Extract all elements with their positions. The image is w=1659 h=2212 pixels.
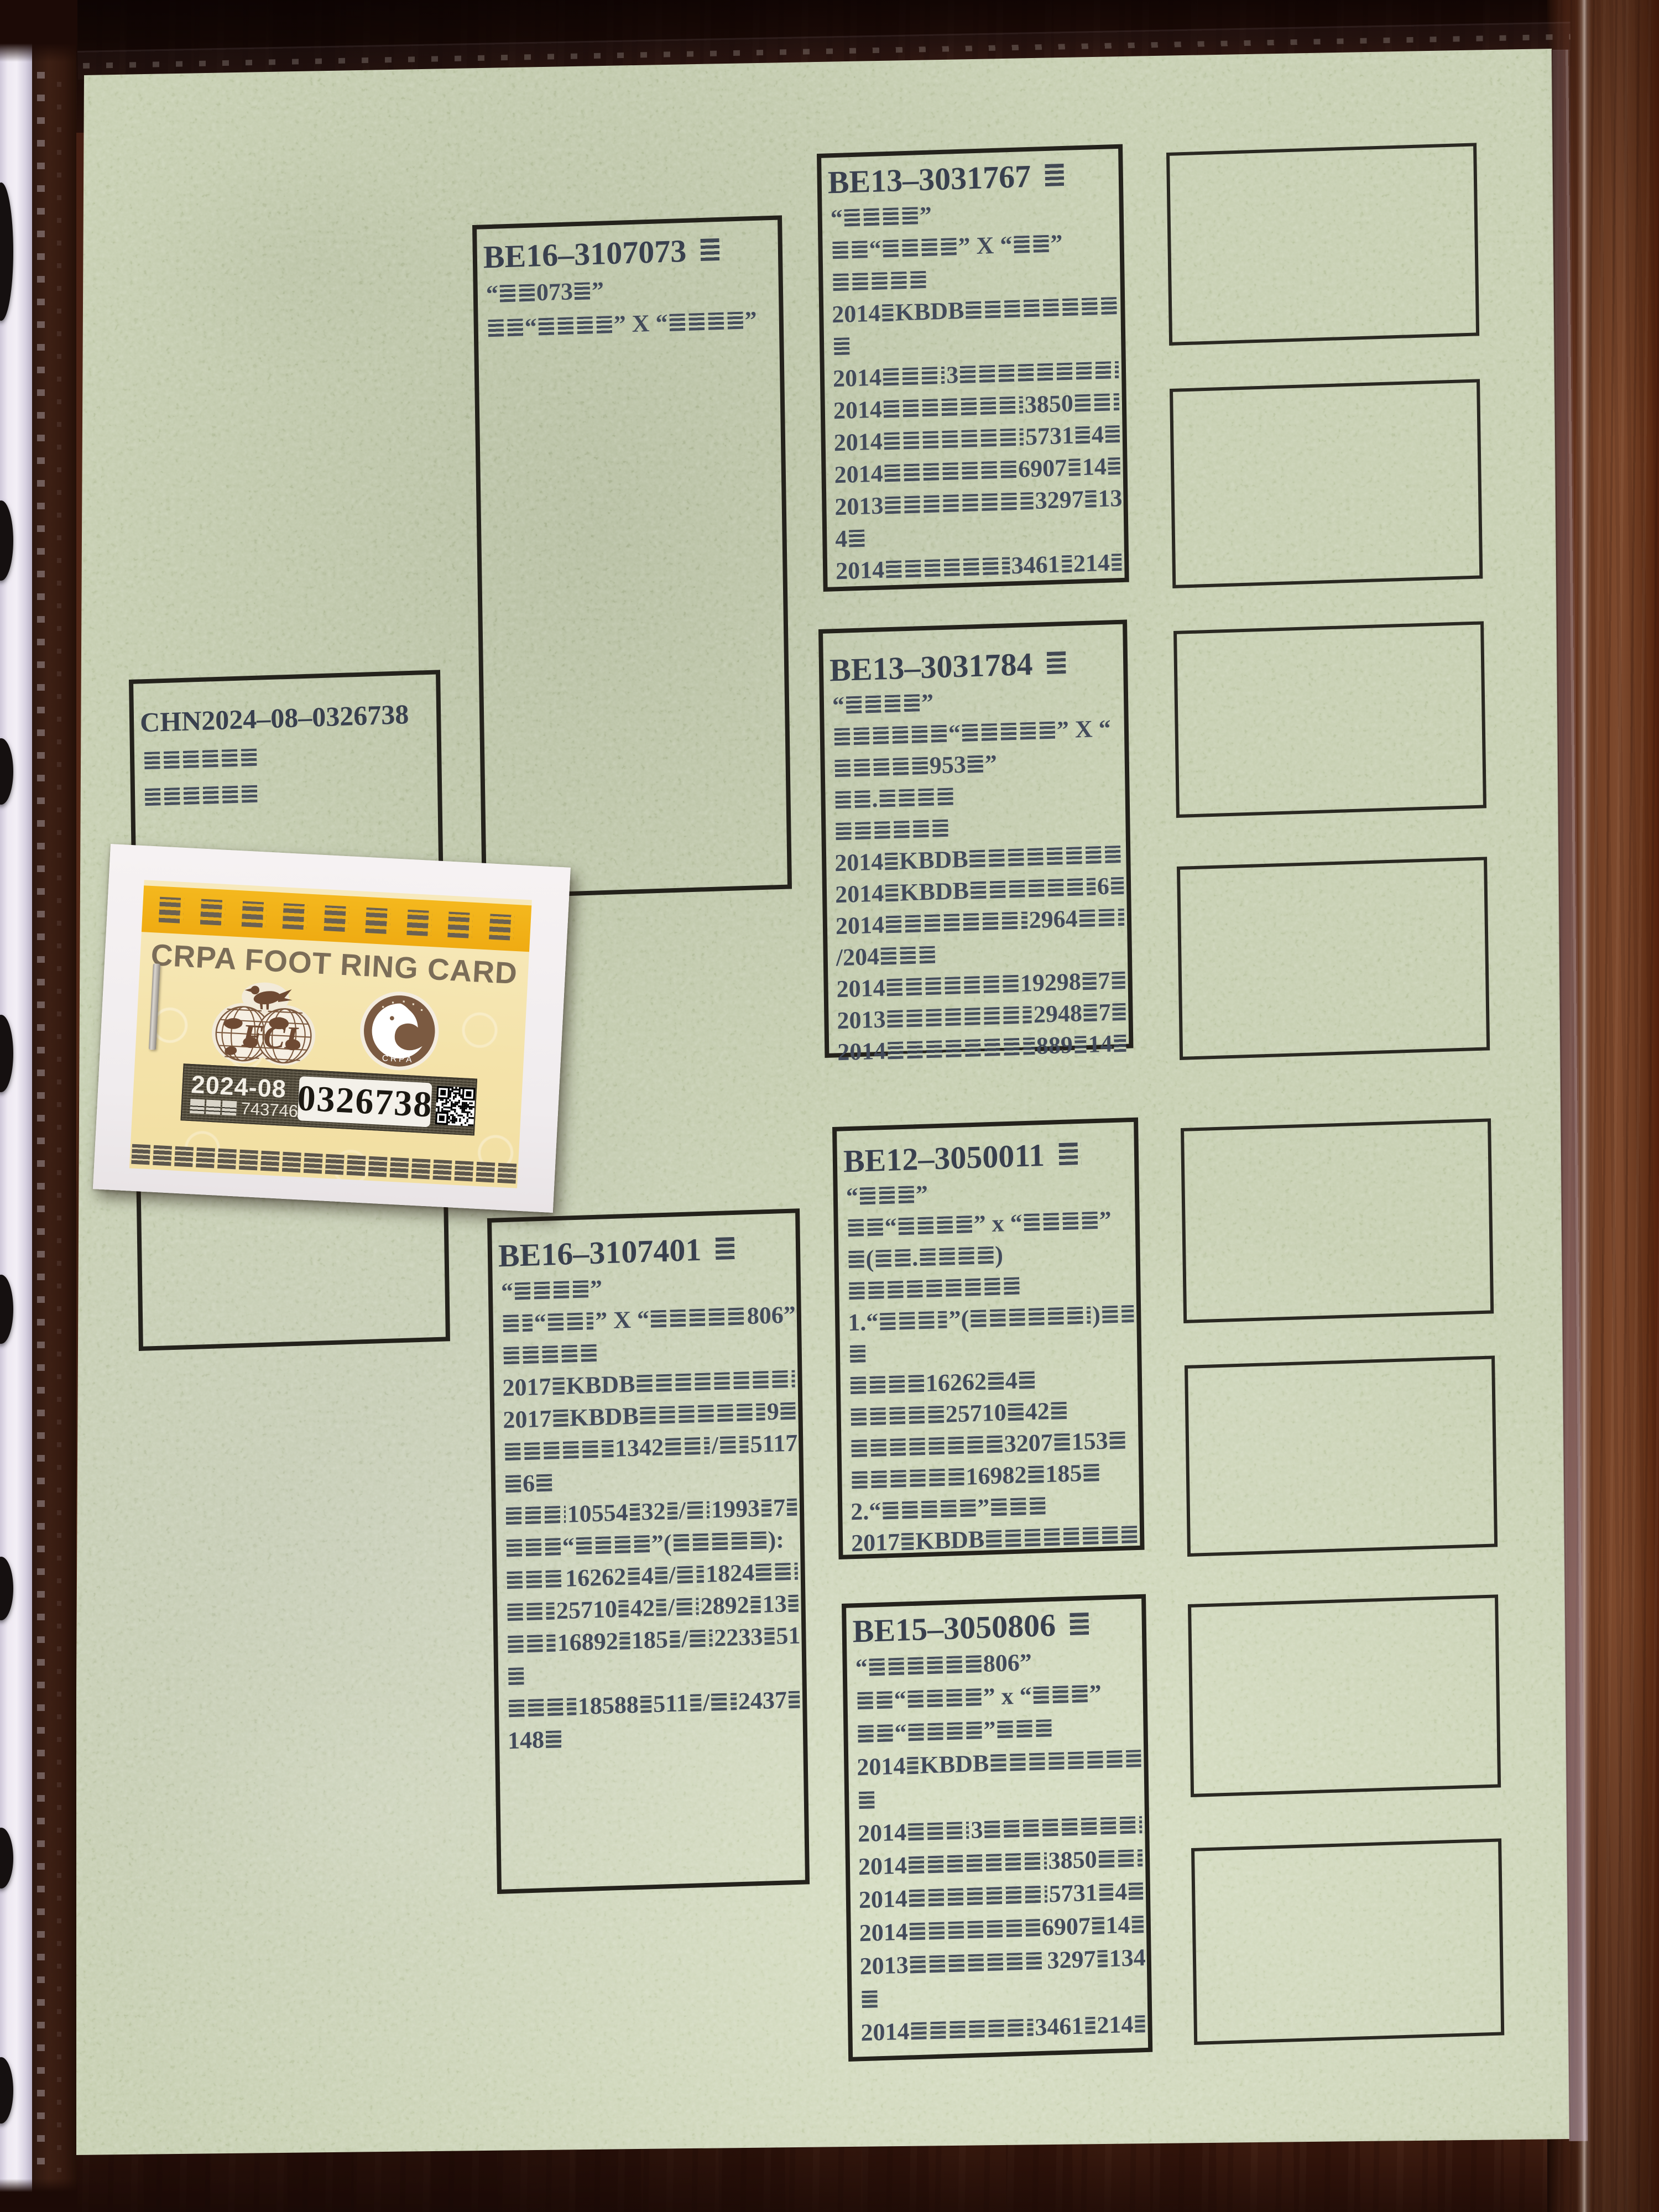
svg-text:▪: ▪ bbox=[412, 1000, 415, 1008]
svg-text:FCI: FCI bbox=[241, 1018, 300, 1056]
svg-text:▪: ▪ bbox=[403, 998, 405, 1005]
svg-text:CRPA: CRPA bbox=[382, 1053, 414, 1065]
svg-text:▪: ▪ bbox=[382, 1003, 384, 1011]
svg-text:▪: ▪ bbox=[392, 999, 394, 1006]
svg-text:▪: ▪ bbox=[420, 1006, 423, 1014]
